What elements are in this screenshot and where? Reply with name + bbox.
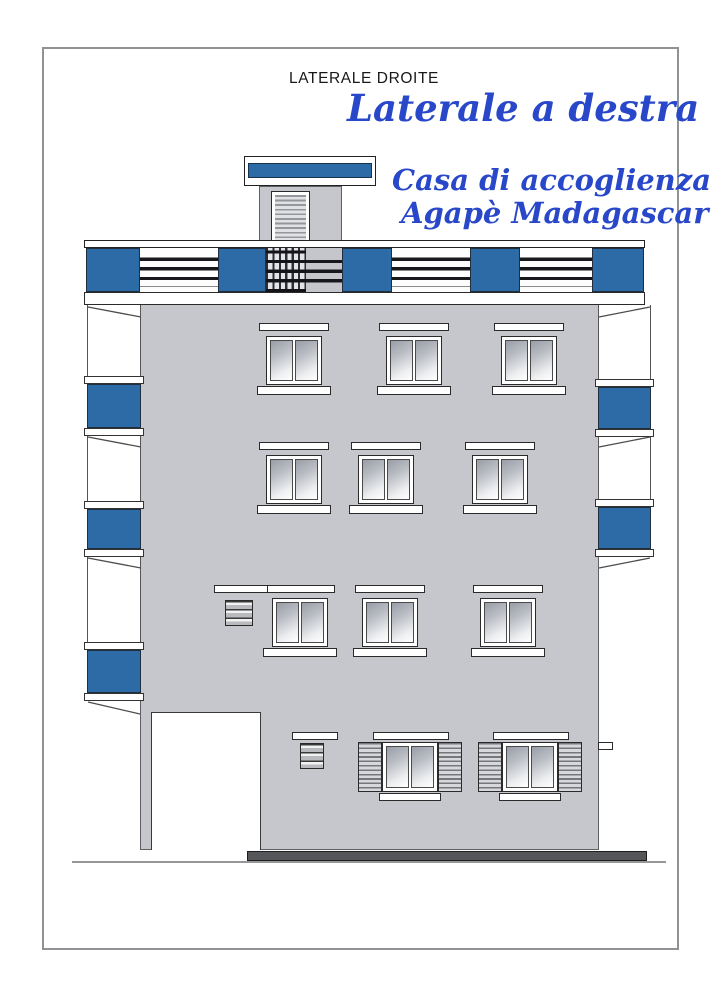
slab-soffit-lines [0,0,720,1003]
drawing-page: LATERALE DROITE Laterale a destra Casa d… [0,0,720,1003]
building-elevation-drawing [0,0,720,1003]
